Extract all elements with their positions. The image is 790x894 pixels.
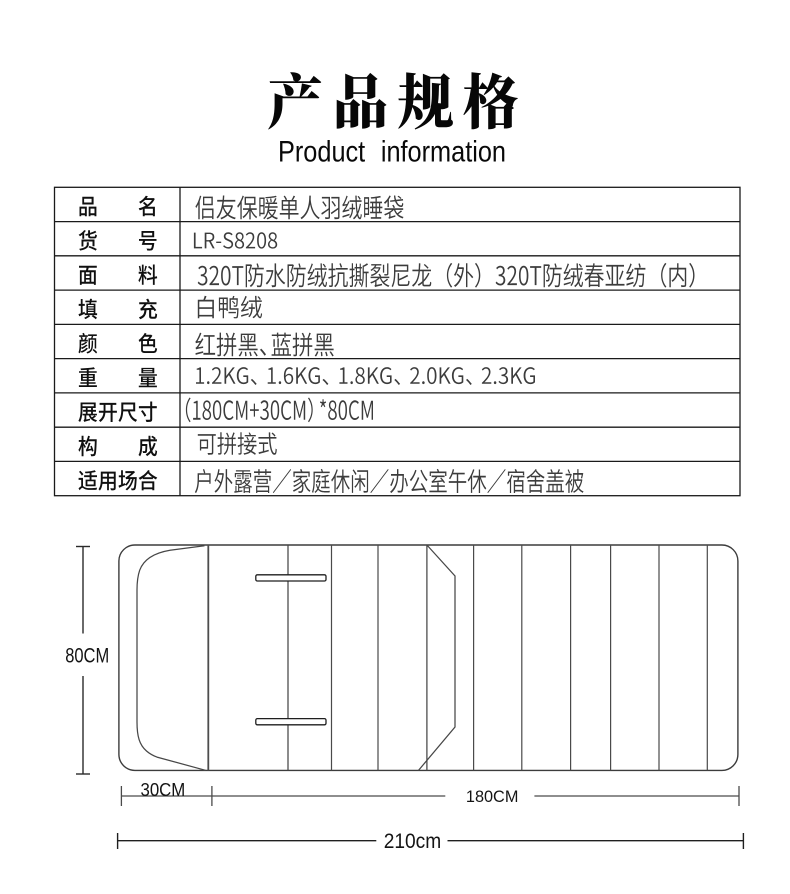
svg-text:Product information: Product information	[278, 135, 506, 168]
svg-text:30CM: 30CM	[141, 780, 186, 801]
svg-text:210cm: 210cm	[384, 829, 442, 853]
svg-text:180CM: 180CM	[466, 788, 519, 806]
svg-text:80CM: 80CM	[65, 645, 109, 668]
